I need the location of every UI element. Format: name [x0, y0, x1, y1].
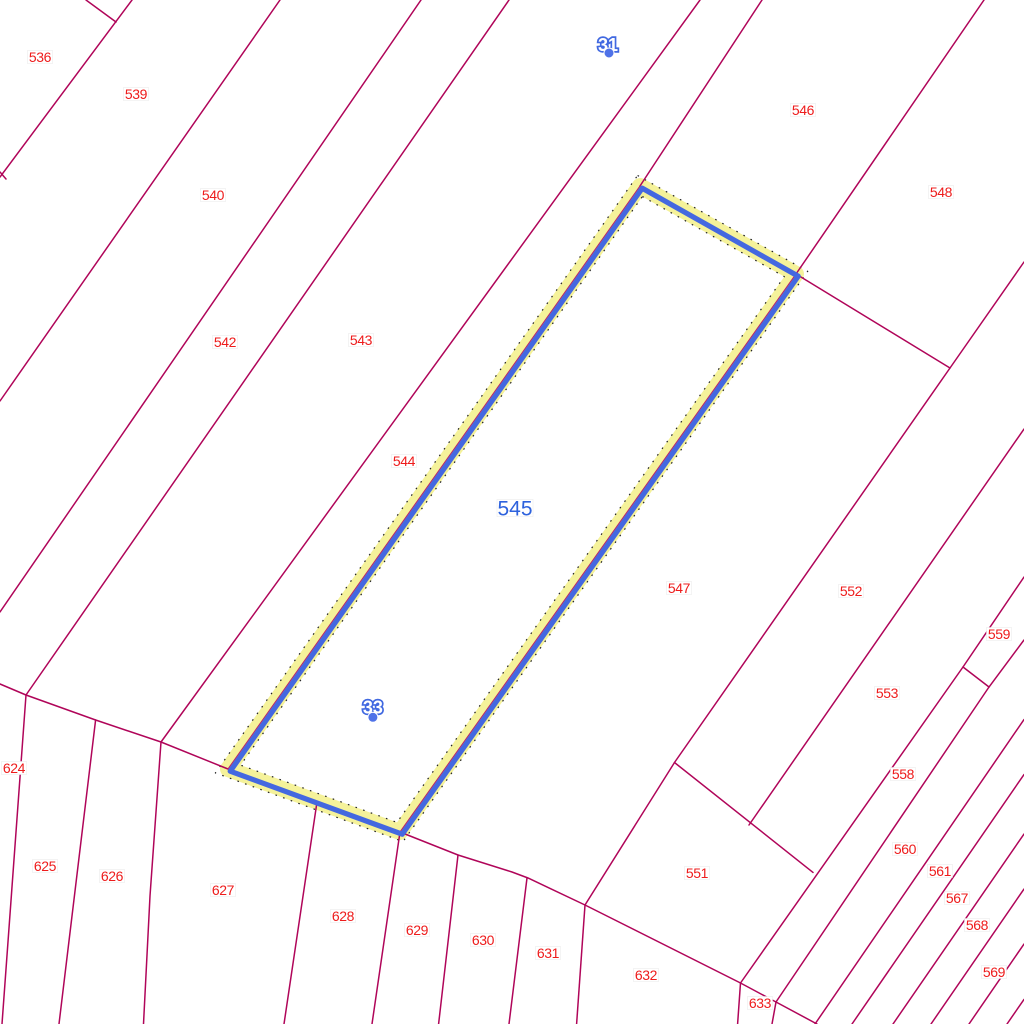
svg-text:548: 548: [930, 184, 953, 200]
svg-text:629: 629: [406, 922, 429, 938]
svg-text:568: 568: [966, 917, 989, 933]
svg-text:626: 626: [101, 868, 124, 884]
svg-text:559: 559: [988, 626, 1011, 642]
svg-text:558: 558: [892, 766, 915, 782]
svg-text:546: 546: [792, 102, 815, 118]
svg-text:551: 551: [686, 865, 709, 881]
svg-text:561: 561: [929, 863, 952, 879]
svg-text:624: 624: [3, 760, 26, 776]
svg-text:567: 567: [946, 890, 969, 906]
svg-text:539: 539: [125, 86, 148, 102]
svg-text:547: 547: [668, 580, 691, 596]
svg-text:628: 628: [332, 908, 355, 924]
svg-text:630: 630: [472, 932, 495, 948]
svg-text:560: 560: [894, 841, 917, 857]
svg-text:545: 545: [497, 498, 532, 521]
svg-text:540: 540: [202, 187, 225, 203]
svg-text:632: 632: [635, 967, 658, 983]
svg-text:536: 536: [29, 49, 52, 65]
svg-text:542: 542: [214, 334, 237, 350]
svg-text:569: 569: [983, 964, 1006, 980]
svg-text:544: 544: [393, 453, 416, 469]
svg-text:631: 631: [537, 945, 560, 961]
svg-text:553: 553: [876, 685, 899, 701]
svg-text:633: 633: [749, 995, 772, 1011]
svg-text:627: 627: [212, 882, 235, 898]
svg-text:625: 625: [34, 858, 57, 874]
svg-text:552: 552: [840, 583, 863, 599]
svg-text:543: 543: [350, 332, 373, 348]
